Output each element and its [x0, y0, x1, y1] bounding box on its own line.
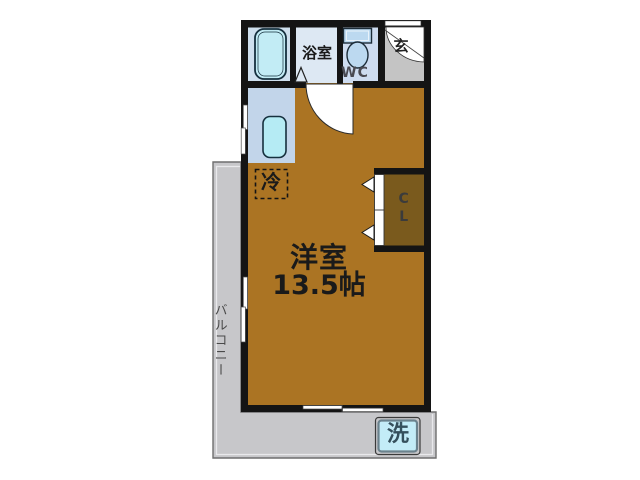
wall-right [424, 20, 431, 412]
sliding-window-icon-living-pane1 [243, 277, 247, 309]
bathroom-label: 浴室 [297, 46, 337, 62]
sliding-window-icon-south-pane1 [303, 406, 342, 409]
main-room-label: 洋室 13.5帖 [249, 243, 389, 301]
closet-label: CL [396, 191, 411, 227]
refrigerator-label: 冷 [255, 172, 287, 193]
wall-tub-stall [290, 27, 296, 84]
wall-bath-south-right [353, 81, 431, 88]
wall-wc-entrance [378, 27, 385, 84]
wall-left [241, 20, 248, 412]
main-room-size: 13.5帖 [249, 272, 389, 300]
sliding-window-icon-kitchen-pane2 [241, 128, 245, 154]
floorplan-drawing [0, 0, 640, 480]
washer-label: 洗 [382, 423, 414, 446]
kitchen-sink-icon [263, 117, 286, 158]
sliding-window-icon-south-pane2 [342, 408, 383, 411]
sliding-window-icon-kitchen-pane1 [243, 105, 247, 130]
wall-closet-top [374, 168, 424, 175]
entrance-door [385, 21, 421, 26]
balcony-label: バルコニー [212, 303, 226, 378]
bathtub-icon [255, 29, 286, 79]
entrance-label: 玄 [386, 39, 416, 55]
main-room-name: 洋室 [249, 243, 389, 272]
toilet-label: WC [334, 66, 376, 81]
sliding-window-icon-living-pane2 [241, 307, 245, 342]
floorplan: 洋室 13.5帖 浴室 WC 玄 冷 CL バルコニー 洗 [0, 0, 640, 480]
